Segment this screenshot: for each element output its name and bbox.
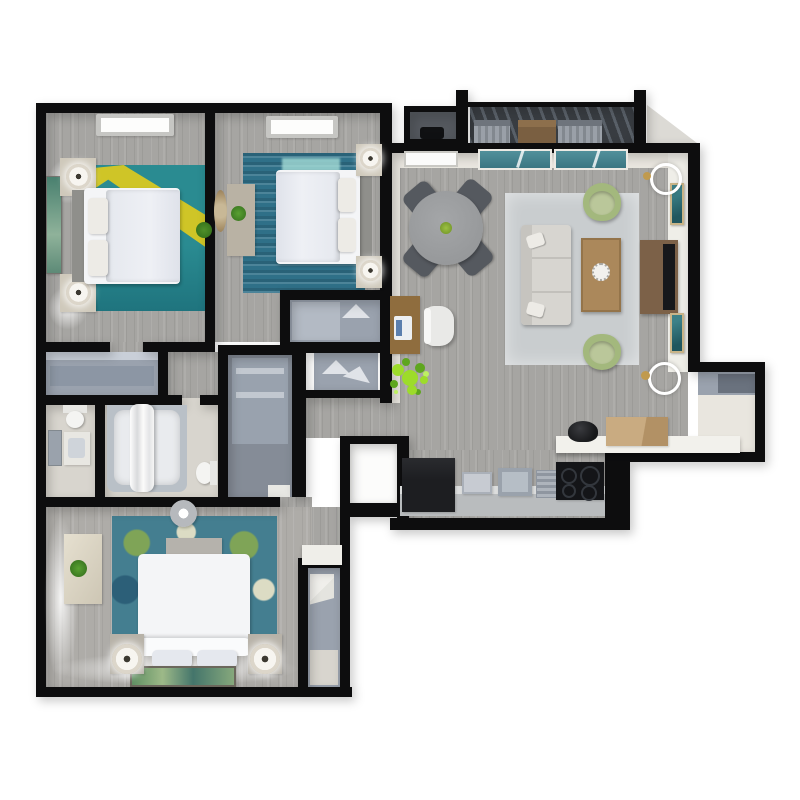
living-window [404,151,458,167]
refrigerator [402,458,455,512]
wall-notch-top [688,362,765,372]
laptop-screen [396,320,402,336]
kitchen-sink-basin [502,472,528,492]
tv [663,244,675,310]
bathroom-toilet-tank [210,461,217,485]
utility-door-light [268,485,290,497]
master-ceiling-fan [170,500,197,527]
cardboard-box [606,417,668,446]
sofa-cushion-line1 [532,257,571,259]
powder-sink [68,438,85,458]
master-lamp-left [112,644,142,674]
wall-balcony-storage-frame [404,106,462,145]
entry-closet-shelf [718,374,755,393]
balcony-chair-right [558,120,602,143]
master-lamp-right [250,644,280,674]
wall-b2closet-top [280,290,390,300]
bedroom2-round-mirror [214,190,227,232]
wall-bath-top-a [168,395,182,405]
wall-notch-right [755,362,765,462]
bedroom2-duvet [276,172,340,262]
powder-mirror [48,430,62,466]
sliding-door-right [554,149,628,170]
balcony-corner-wall [647,105,697,143]
bedroom1-pillow-bottom [88,240,108,276]
wall-living-right [688,143,700,372]
wall-balcony-top-edge [468,102,636,107]
living-west-wall-face [392,153,400,403]
powder-toilet-bowl [66,411,84,428]
wall-master-top [36,497,280,507]
wall-bed1-south-a [36,342,110,352]
bedroom2-ceiling-light-panel [271,120,333,134]
wall-linencloset-top [306,345,388,353]
sconce-bottom-finial [641,371,650,380]
small-appliance [462,472,492,494]
sconce-top-finial [643,172,651,180]
wic-shelves [310,574,334,618]
bedroom1-duvet [106,190,180,282]
sconce-top [650,163,682,195]
hall-closet-light [46,352,158,360]
accent-chair-bottom-seat [589,341,615,364]
wall-utility-left [218,345,228,497]
dining-centerpiece [440,222,452,234]
wic-floor-light [310,650,338,685]
floor-plan [0,0,800,800]
utility-shelf-line2 [236,392,284,398]
bedroom1-ceiling-light-panel [101,118,169,132]
bedroom2-closet-hangers [342,304,370,318]
wall-art-bottom [670,313,684,353]
bedroom2-pillow-top [338,178,356,212]
wall-linencloset-bottom [306,390,386,398]
laundry-floor [350,444,397,505]
accent-chair-top-seat [589,191,615,215]
cooktop-burner-4 [581,485,597,501]
bedroom2-headboard [358,166,372,266]
sliding-door-left [478,149,552,170]
sconce-bottom [648,362,681,395]
master-wall-art [130,666,236,687]
cooktop-burner-3 [562,484,576,498]
balcony-table [518,120,556,143]
office-chair-back [424,308,431,344]
wall-balcony-post-right [634,90,646,145]
wall-wing-east [340,436,350,697]
bedroom2-closet-bench [292,302,340,340]
sofa-cushion-line2 [532,291,571,293]
shower-curtain [130,404,154,492]
bedroom1-plant [196,222,212,238]
cooktop-burner-2 [580,466,600,486]
bedroom1-lamp-top [66,164,91,189]
master-bed [138,554,250,650]
wall-southeast-bottom [620,452,765,462]
bedroom2-lamp-bottom [360,260,381,281]
hall-closet-shelf [50,366,154,386]
wall-powder-bath-divider [95,403,105,497]
black-bowl [568,421,598,442]
wall-bed1-south-b [143,342,215,352]
wall-kitchen-bottom [390,518,630,530]
utility-shelf-line [236,368,284,374]
potted-plant [402,370,418,386]
bedroom2-lamp-top [360,148,381,169]
cooktop-burner-1 [561,468,577,484]
master-nook-counter [302,545,342,565]
bedroom1-pillow-top [88,198,108,234]
master-dresser-plant [70,560,87,577]
balcony-chair-left [474,120,510,143]
bedroom2-plant [231,206,246,221]
bedroom2-pillow-bottom [338,218,356,252]
coffee-table-medallion [592,263,610,281]
wall-utility-right [292,345,306,497]
